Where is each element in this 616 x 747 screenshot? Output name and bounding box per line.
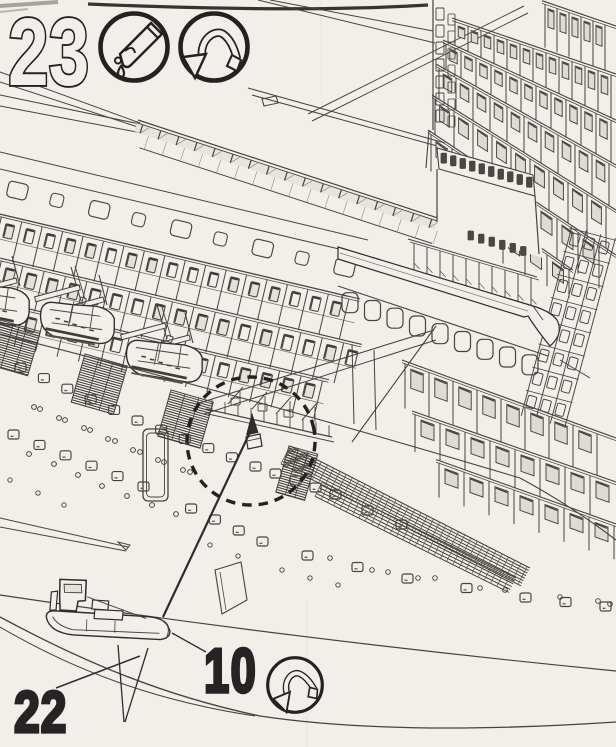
svg-text:10: 10 (204, 636, 257, 706)
svg-text:23: 23 (8, 0, 89, 106)
svg-text:22: 22 (14, 680, 67, 745)
